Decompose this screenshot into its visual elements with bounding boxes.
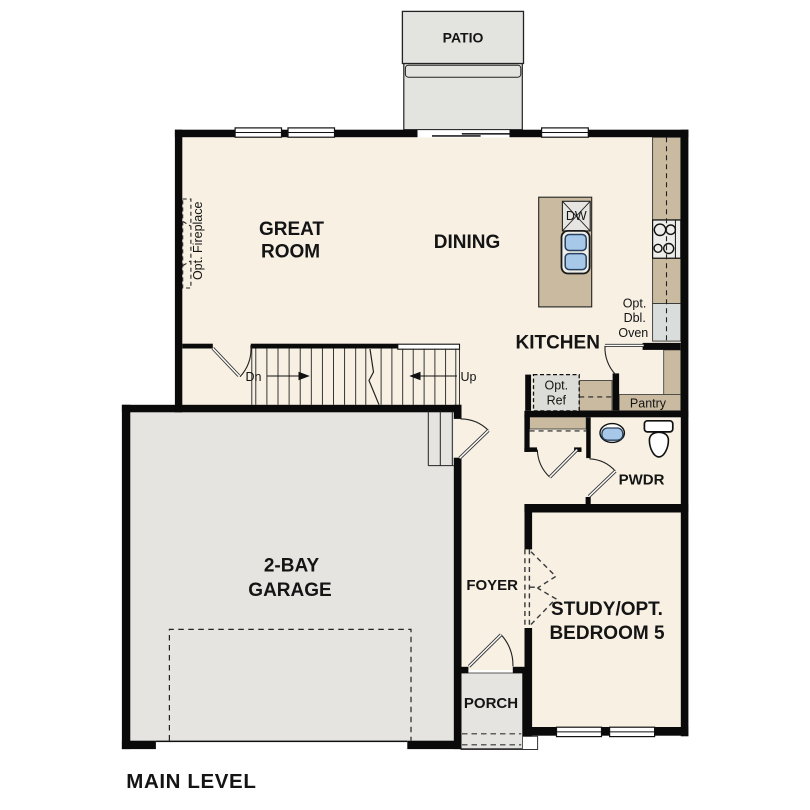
svg-text:BEDROOM 5: BEDROOM 5 <box>549 623 665 644</box>
svg-text:Up: Up <box>461 370 477 384</box>
svg-text:GARAGE: GARAGE <box>248 580 331 601</box>
svg-text:Ref: Ref <box>547 393 567 407</box>
svg-text:MAIN LEVEL: MAIN LEVEL <box>126 770 256 793</box>
svg-text:STUDY/OPT.: STUDY/OPT. <box>551 599 663 620</box>
svg-text:Opt.: Opt. <box>544 378 568 392</box>
svg-text:Dn: Dn <box>246 370 262 384</box>
svg-text:PORCH: PORCH <box>464 695 518 712</box>
svg-text:ROOM: ROOM <box>261 242 320 263</box>
svg-text:Opt.: Opt. <box>623 296 647 310</box>
svg-text:DINING: DINING <box>434 232 501 253</box>
svg-text:Pantry: Pantry <box>630 397 667 411</box>
svg-text:2-BAY: 2-BAY <box>264 555 320 576</box>
svg-text:Dbl.: Dbl. <box>624 311 646 325</box>
svg-text:PWDR: PWDR <box>619 472 665 489</box>
svg-text:DW: DW <box>566 209 587 223</box>
svg-text:FOYER: FOYER <box>466 577 518 594</box>
svg-text:Opt. Fireplace: Opt. Fireplace <box>191 202 205 281</box>
svg-text:Oven: Oven <box>618 326 648 340</box>
svg-text:GREAT: GREAT <box>259 219 324 240</box>
svg-text:KITCHEN: KITCHEN <box>515 332 599 353</box>
svg-text:PATIO: PATIO <box>443 30 484 46</box>
